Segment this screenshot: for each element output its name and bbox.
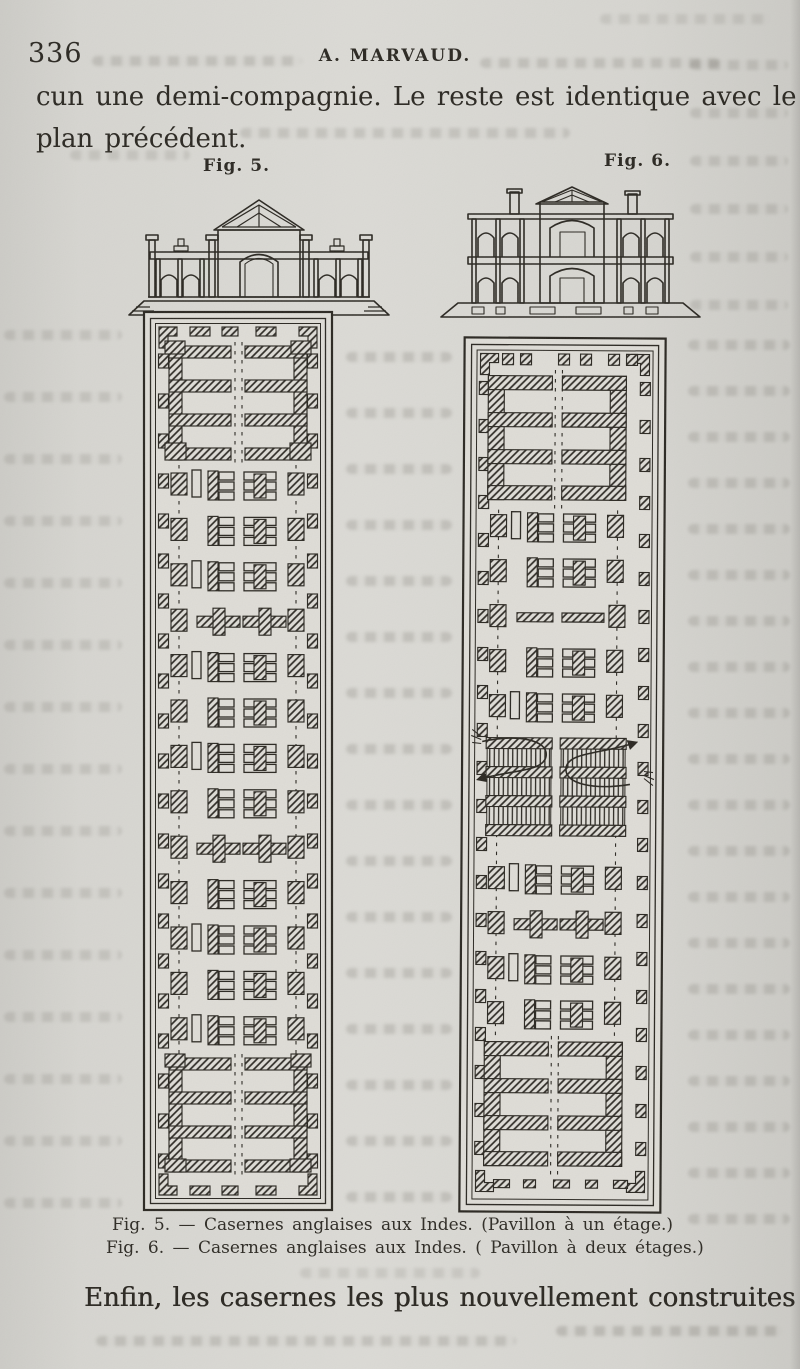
closing-paragraph-line: Enfin, les casernes les plus nouvellemen… xyxy=(84,1283,800,1313)
bleed-through-smudge xyxy=(688,432,790,442)
bleed-through-smudge xyxy=(688,570,790,580)
bleed-through-smudge xyxy=(346,688,452,698)
bleed-through-smudge xyxy=(92,56,302,66)
bleed-through-smudge xyxy=(300,1268,480,1278)
bleed-through-smudge xyxy=(346,632,452,642)
bleed-through-smudge xyxy=(346,1192,452,1202)
bleed-through-smudge xyxy=(346,408,452,418)
bleed-through-smudge xyxy=(688,892,790,902)
bleed-through-smudge xyxy=(346,576,452,586)
bleed-through-smudge xyxy=(690,204,788,214)
bleed-through-smudge xyxy=(4,826,122,836)
bleed-through-smudge xyxy=(4,640,122,650)
bleed-through-smudge xyxy=(688,754,790,764)
bleed-through-smudge xyxy=(480,58,720,68)
figure-6-caption: Fig. 6. — Casernes anglaises aux Indes. … xyxy=(106,1238,704,1258)
bleed-through-smudge xyxy=(690,108,788,118)
bleed-through-smudge xyxy=(688,800,790,810)
bleed-through-smudge xyxy=(346,1136,452,1146)
bleed-through-smudge xyxy=(4,578,122,588)
bleed-through-smudge xyxy=(4,702,122,712)
intro-paragraph-line-1: cun une demi-compagnie. Le reste est ide… xyxy=(36,82,797,112)
bleed-through-smudge xyxy=(346,352,452,362)
figure-6-plan-drawing xyxy=(457,335,667,1214)
bleed-through-smudge xyxy=(688,708,790,718)
figure-5-plan-drawing xyxy=(142,310,334,1212)
bleed-through-smudge xyxy=(346,744,452,754)
bleed-through-smudge xyxy=(4,1198,122,1208)
bleed-through-smudge xyxy=(688,478,790,488)
figure-6-elevation-drawing xyxy=(438,186,703,322)
bleed-through-smudge xyxy=(688,1030,790,1040)
bleed-through-smudge xyxy=(4,1074,122,1084)
bleed-through-smudge xyxy=(688,1076,790,1086)
bleed-through-smudge xyxy=(346,520,452,530)
bleed-through-smudge xyxy=(4,392,122,402)
bleed-through-smudge xyxy=(600,14,770,24)
bleed-through-smudge xyxy=(346,800,452,810)
bleed-through-smudge xyxy=(690,252,788,262)
bleed-through-smudge xyxy=(4,1012,122,1022)
bleed-through-smudge xyxy=(70,150,190,160)
bleed-through-smudge xyxy=(688,386,790,396)
bleed-through-smudge xyxy=(688,846,790,856)
bleed-through-smudge xyxy=(688,938,790,948)
bleed-through-smudge xyxy=(346,856,452,866)
bleed-through-smudge xyxy=(346,1080,452,1090)
bleed-through-smudge xyxy=(690,300,788,310)
bleed-through-smudge xyxy=(688,984,790,994)
figure-5-label: Fig. 5. xyxy=(203,156,270,176)
bleed-through-smudge xyxy=(346,1024,452,1034)
bleed-through-smudge xyxy=(688,616,790,626)
bleed-through-smudge xyxy=(346,464,452,474)
bleed-through-smudge xyxy=(4,950,122,960)
bleed-through-smudge xyxy=(346,968,452,978)
bleed-through-smudge xyxy=(556,1326,782,1336)
bleed-through-smudge xyxy=(346,912,452,922)
bleed-through-smudge xyxy=(690,156,788,166)
bleed-through-smudge xyxy=(688,524,790,534)
bleed-through-smudge xyxy=(4,516,122,526)
bleed-through-smudge xyxy=(688,340,790,350)
figure-6-label: Fig. 6. xyxy=(604,151,671,171)
page-edge-shadow xyxy=(790,0,800,1369)
bleed-through-smudge xyxy=(4,1136,122,1146)
bleed-through-smudge xyxy=(688,1122,790,1132)
bleed-through-smudge xyxy=(688,1214,790,1224)
bleed-through-smudge xyxy=(4,454,122,464)
bleed-through-smudge xyxy=(4,330,122,340)
bleed-through-smudge xyxy=(4,888,122,898)
bleed-through-smudge xyxy=(240,128,570,138)
bleed-through-smudge xyxy=(4,764,122,774)
bleed-through-smudge xyxy=(688,662,790,672)
bleed-through-smudge xyxy=(688,1168,790,1178)
figure-5-elevation-drawing xyxy=(124,194,394,320)
figure-5-caption: Fig. 5. — Casernes anglaises aux Indes. … xyxy=(112,1215,673,1235)
bleed-through-smudge xyxy=(96,1336,516,1346)
